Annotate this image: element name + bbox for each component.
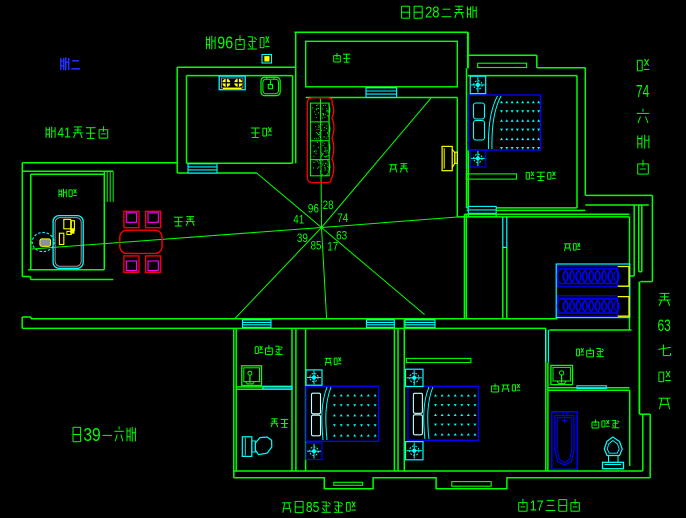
svg-text:28: 28 xyxy=(425,5,440,22)
svg-text:63: 63 xyxy=(658,317,671,335)
svg-text:96: 96 xyxy=(217,33,233,53)
svg-text:41: 41 xyxy=(293,212,304,226)
svg-text:85: 85 xyxy=(306,500,319,516)
svg-text:85: 85 xyxy=(311,238,322,252)
svg-text:28: 28 xyxy=(323,198,334,212)
svg-text:41: 41 xyxy=(57,126,70,142)
svg-text:17: 17 xyxy=(327,239,338,253)
svg-text:17: 17 xyxy=(530,498,544,515)
svg-text:96: 96 xyxy=(308,201,319,215)
svg-text:39: 39 xyxy=(83,425,100,446)
svg-text:74: 74 xyxy=(337,211,348,225)
svg-text:74: 74 xyxy=(636,81,649,101)
svg-text:39: 39 xyxy=(297,231,308,245)
